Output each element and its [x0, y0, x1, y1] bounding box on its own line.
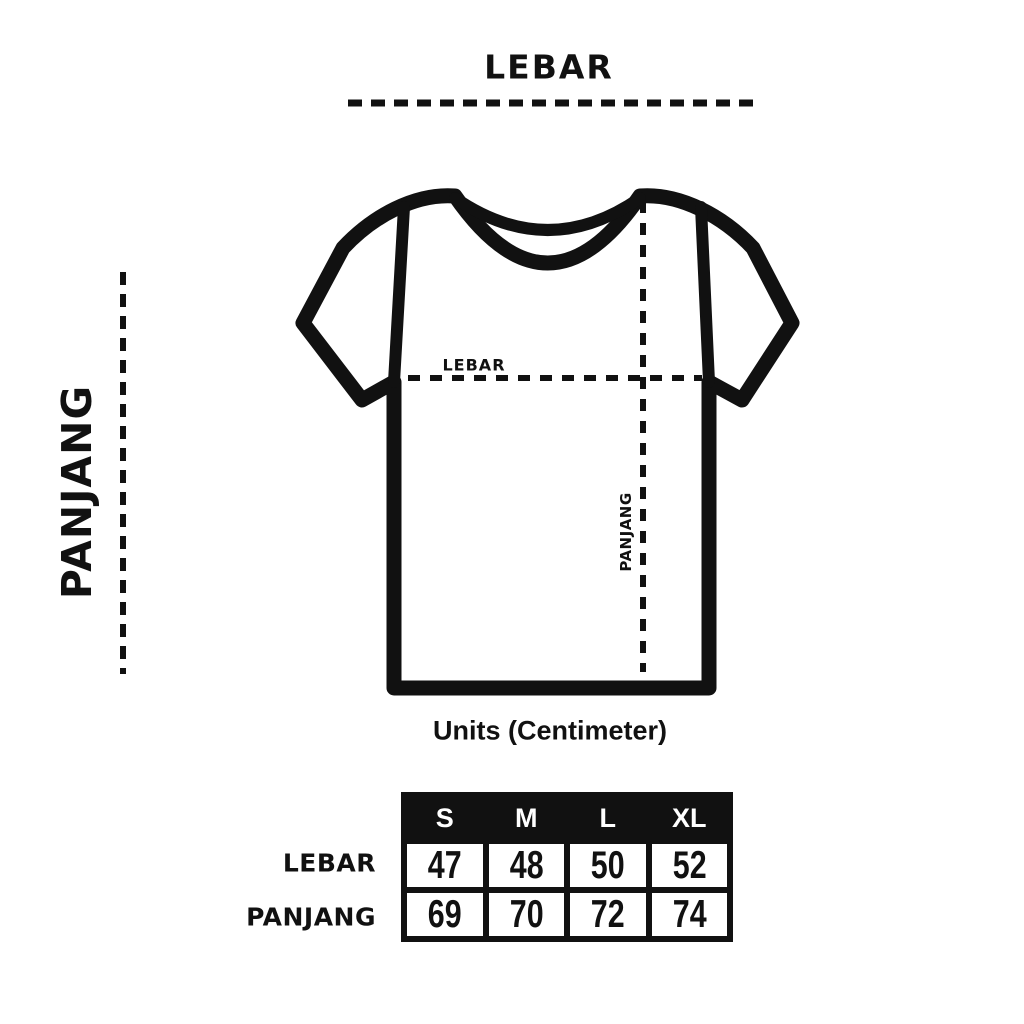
size-value-cell-lebar-m: 48 [489, 844, 565, 887]
size-table: S M L XL 47 48 50 52 69 70 72 74 [401, 792, 733, 942]
size-value-cell-lebar-xl: 52 [652, 844, 728, 887]
size-value-cell-panjang-m: 70 [489, 893, 565, 936]
size-column-header-s: S [407, 798, 483, 838]
units-caption: Units (Centimeter) [433, 716, 667, 747]
row-label-panjang: PANJANG [176, 903, 376, 932]
size-column-header-xl: XL [652, 798, 728, 838]
size-value-cell-panjang-xl: 74 [652, 893, 728, 936]
size-value-cell-panjang-l: 72 [570, 893, 646, 936]
right-sleeve-seam [701, 207, 709, 382]
size-value-cell-lebar-l: 50 [570, 844, 646, 887]
length-axis-label: PANJANG [53, 385, 101, 599]
chart-title: LEBAR [484, 48, 614, 87]
size-value-cell-panjang-s: 69 [407, 893, 483, 936]
size-value-cell-lebar-s: 47 [407, 844, 483, 887]
size-column-header-l: L [570, 798, 646, 838]
row-label-lebar: LEBAR [176, 849, 376, 878]
size-chart-page: LEBAR PANJANG LEBAR PANJANG Units (Centi… [0, 0, 1024, 1024]
shirt-length-label: PANJANG [617, 492, 635, 571]
size-column-header-m: M [489, 798, 565, 838]
shirt-width-label: LEBAR [442, 356, 505, 375]
tshirt-outline [303, 196, 792, 688]
